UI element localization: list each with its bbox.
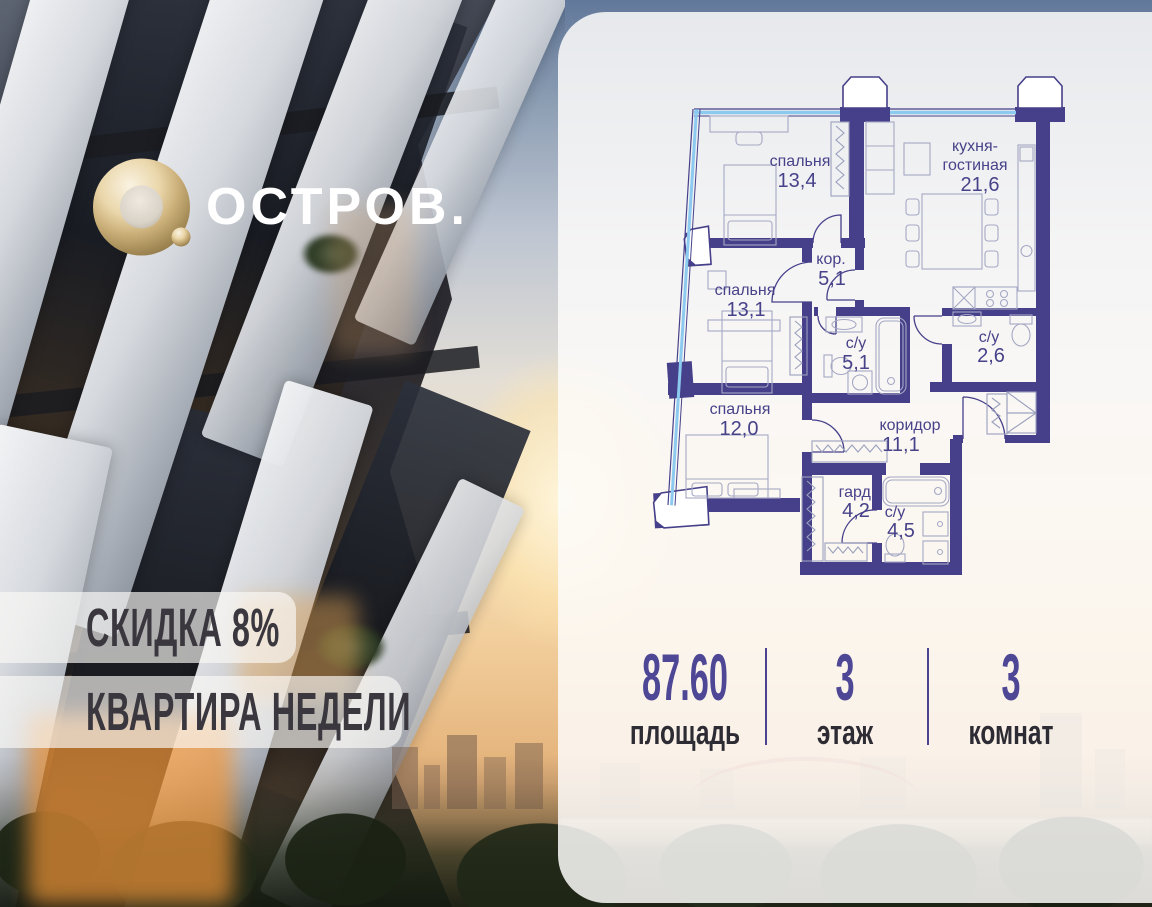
room-label: спальня xyxy=(715,282,776,299)
flat-of-week-badge: КВАРТИРА НЕДЕЛИ xyxy=(0,676,402,748)
stats-divider xyxy=(765,648,767,745)
room-area: 13,4 xyxy=(778,170,817,192)
stat-rooms-label: комнат xyxy=(961,716,1062,750)
discount-badge: СКИДКА 8% xyxy=(0,592,296,663)
room-area: 12,0 xyxy=(720,418,759,440)
room-area: 13,1 xyxy=(727,299,766,321)
floor-plan: спальня 13,4 кухня- гостиная 21,6 кор. 5… xyxy=(650,65,1130,615)
room-area: 4,2 xyxy=(842,500,870,522)
stat-area: 87.60 площадь xyxy=(595,646,775,750)
stat-floor-label: этаж xyxy=(795,716,896,750)
discount-badge-label: СКИДКА 8% xyxy=(86,601,280,655)
room-label: с/у xyxy=(846,335,866,352)
stat-area-value: 87.60 xyxy=(638,646,732,708)
room-label: с/у xyxy=(979,329,999,346)
room-label: с/у xyxy=(885,504,905,521)
room-label: гард. xyxy=(839,484,876,501)
room-label: коридор xyxy=(879,417,940,434)
room-area: 11,1 xyxy=(882,434,919,456)
stat-floor: 3 этаж xyxy=(775,646,915,750)
stat-area-label: площадь xyxy=(620,716,750,750)
room-label: кор. xyxy=(816,251,845,268)
room-area: 5,1 xyxy=(818,268,846,290)
logo-mark-icon xyxy=(81,148,203,270)
stat-rooms: 3 комнат xyxy=(941,646,1081,750)
promo-banner: СКИДКА 8% КВАРТИРА НЕДЕЛИ xyxy=(0,0,1152,907)
stat-floor-value: 3 xyxy=(809,646,882,708)
room-label: спальня xyxy=(770,153,831,170)
flat-card: спальня 13,4 кухня- гостиная 21,6 кор. 5… xyxy=(558,12,1152,903)
stat-rooms-value: 3 xyxy=(975,646,1048,708)
room-label: спальня xyxy=(710,401,771,418)
room-area: 4,5 xyxy=(887,520,915,542)
room-label: гостиная xyxy=(942,157,1007,174)
room-label: кухня- xyxy=(952,138,998,155)
room-area: 21,6 xyxy=(961,174,1000,196)
stats-divider xyxy=(927,648,929,745)
flat-of-week-label: КВАРТИРА НЕДЕЛИ xyxy=(86,685,411,739)
room-area: 5,1 xyxy=(842,352,870,374)
room-area: 2,6 xyxy=(977,345,1005,367)
logo-wordmark: ОСТРОВ. xyxy=(206,181,469,233)
